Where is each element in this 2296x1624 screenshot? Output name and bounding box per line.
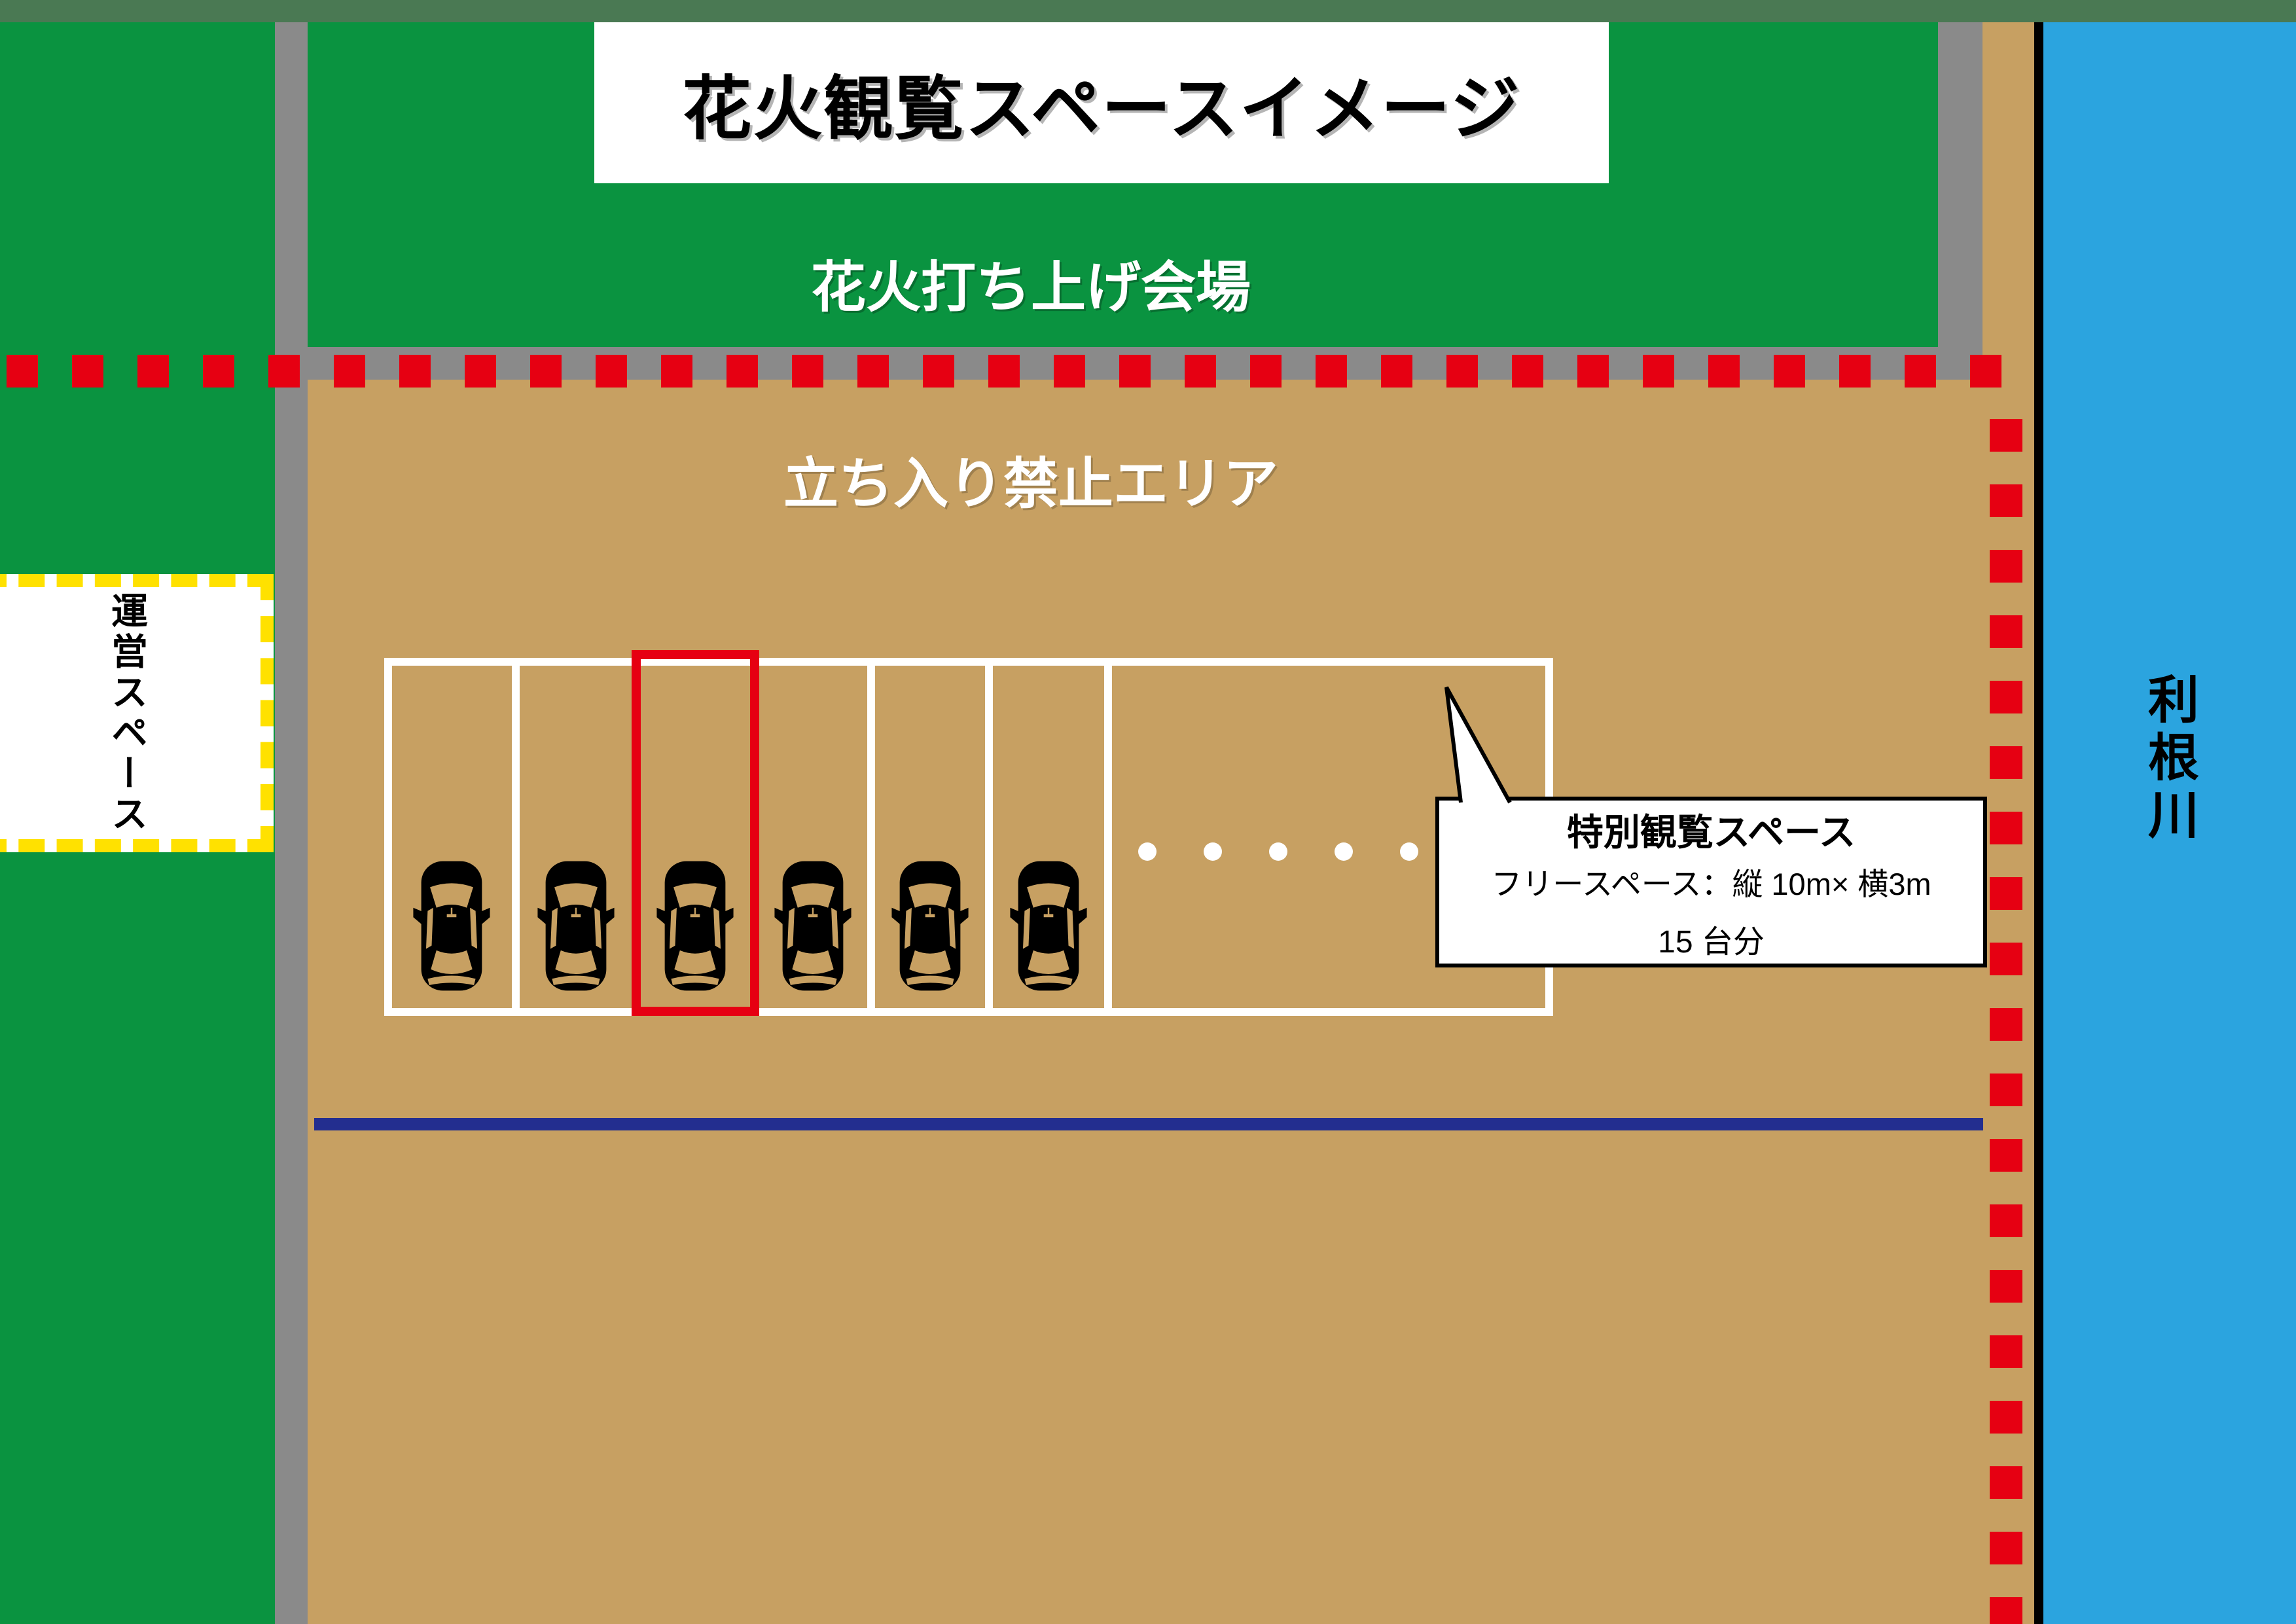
callout-heading: 特別観覧スペース	[1567, 803, 1856, 856]
car-icon	[773, 859, 853, 993]
boundary-dash	[1990, 419, 2022, 452]
boundary-dash	[1839, 355, 1871, 388]
boundary-dash	[1990, 812, 2022, 844]
right-road-corner	[1938, 22, 1982, 380]
boundary-dash	[530, 355, 562, 388]
boundary-dash	[1990, 484, 2022, 517]
boundary-dash	[1990, 1401, 2022, 1434]
boundary-dash	[1446, 355, 1478, 388]
boundary-dash	[792, 355, 823, 388]
boundary-dash	[1970, 355, 2001, 388]
boundary-dash	[1316, 355, 1347, 388]
continuation-dot	[1269, 842, 1287, 861]
boundary-dash	[1990, 615, 2022, 648]
boundary-dash	[1990, 1335, 2022, 1368]
boundary-dash	[1990, 1466, 2022, 1499]
river-label-container: 利根川	[2043, 655, 2296, 864]
boundary-dash	[1185, 355, 1216, 388]
boundary-dash	[72, 355, 103, 388]
boundary-dash	[7, 355, 38, 388]
boundary-dash	[1054, 355, 1085, 388]
boundary-dash	[1990, 681, 2022, 713]
boundary-dash	[1381, 355, 1412, 388]
continuation-dot	[1138, 842, 1157, 861]
boundary-dash	[596, 355, 627, 388]
top-border-strip	[0, 0, 2296, 22]
boundary-dash	[1905, 355, 1936, 388]
callout-capacity: 15 台分	[1658, 916, 1765, 962]
boundary-dash	[1512, 355, 1543, 388]
boundary-dash	[1990, 1008, 2022, 1041]
boundary-dash	[1990, 1204, 2022, 1237]
boundary-dash	[1990, 1074, 2022, 1106]
site-map: 花火観覧スペースイメージ 花火打ち上げ会場 立ち入り禁止エリア 運営スペース	[0, 0, 2296, 1624]
continuation-dot	[1204, 842, 1222, 861]
boundary-dash	[1990, 1532, 2022, 1564]
vertical-road	[275, 22, 308, 1624]
callout-tail-pointer	[1401, 674, 1532, 805]
callout-detail: フリースペース：縦 10m× 横3m	[1491, 859, 1931, 904]
navy-boundary-line	[314, 1118, 1983, 1130]
boundary-dash	[1990, 877, 2022, 910]
stall-divider	[867, 666, 875, 1008]
car-icon	[412, 859, 492, 993]
page-title: 花火観覧スペースイメージ	[682, 52, 1520, 153]
boundary-dash	[1990, 550, 2022, 583]
boundary-dash	[661, 355, 692, 388]
boundary-dash	[857, 355, 889, 388]
boundary-dash	[1119, 355, 1151, 388]
car-icon	[1009, 859, 1088, 993]
car-icon	[536, 859, 616, 993]
boundary-dash	[1577, 355, 1609, 388]
boundary-dash	[465, 355, 496, 388]
title-box: 花火観覧スペースイメージ	[594, 22, 1609, 183]
no-entry-label: 立ち入り禁止エリア	[308, 440, 1754, 518]
river-label: 利根川	[2133, 673, 2206, 846]
boundary-dash	[137, 355, 169, 388]
car-icon	[890, 859, 970, 993]
continuation-dot	[1400, 842, 1418, 861]
boundary-dash	[334, 355, 365, 388]
special-viewing-callout: 特別観覧スペース フリースペース：縦 10m× 横3m 15 台分	[1435, 797, 1987, 967]
boundary-dash	[399, 355, 431, 388]
boundary-dash	[1990, 943, 2022, 975]
launch-venue-label: 花火打ち上げ会場	[308, 244, 1754, 322]
boundary-dash	[726, 355, 758, 388]
stall-divider	[985, 666, 993, 1008]
operations-space-label: 運営スペース	[101, 592, 154, 835]
stall-divider	[1104, 666, 1112, 1008]
boundary-dash	[1708, 355, 1740, 388]
boundary-dash	[203, 355, 234, 388]
boundary-dash	[1990, 746, 2022, 779]
boundary-dash	[1990, 1139, 2022, 1172]
river-bank-line	[2034, 22, 2043, 1624]
stall-divider	[512, 666, 520, 1008]
boundary-dash	[988, 355, 1020, 388]
boundary-dash	[1774, 355, 1805, 388]
operations-space-box: 運営スペース	[0, 574, 274, 852]
boundary-dash	[268, 355, 300, 388]
continuation-dot	[1335, 842, 1353, 861]
boundary-dash	[1990, 1270, 2022, 1303]
boundary-dash	[1643, 355, 1674, 388]
boundary-dash	[1990, 1597, 2022, 1624]
boundary-dash	[1250, 355, 1282, 388]
car-icon	[655, 859, 735, 993]
boundary-dash	[923, 355, 954, 388]
